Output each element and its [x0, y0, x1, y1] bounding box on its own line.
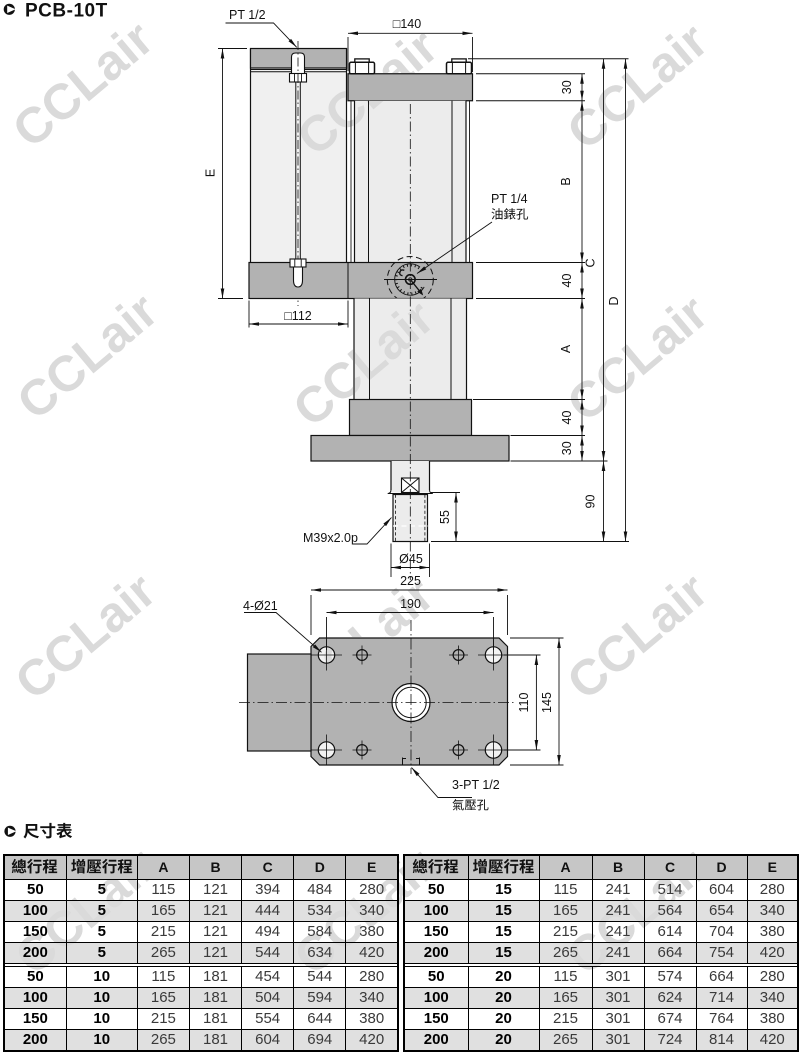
- svg-text:D: D: [607, 296, 621, 305]
- svg-text:M39x2.0p: M39x2.0p: [303, 531, 358, 545]
- svg-text:□112: □112: [284, 309, 312, 323]
- svg-text:90: 90: [584, 495, 598, 509]
- svg-text:3-PT 1/2: 3-PT 1/2: [452, 778, 500, 792]
- svg-text:225: 225: [400, 574, 421, 588]
- svg-text:Ø45: Ø45: [399, 552, 423, 566]
- svg-text:145: 145: [540, 692, 554, 713]
- svg-text:C: C: [584, 258, 598, 267]
- svg-text:4-Ø21: 4-Ø21: [243, 599, 278, 613]
- svg-text:40: 40: [560, 274, 574, 288]
- svg-text:PCB-10T: PCB-10T: [25, 1, 108, 22]
- svg-text:E: E: [204, 169, 218, 177]
- svg-text:PT 1/2: PT 1/2: [229, 8, 266, 22]
- svg-text:A: A: [559, 344, 573, 353]
- svg-text:PT 1/4: PT 1/4: [491, 192, 528, 206]
- svg-text:55: 55: [438, 510, 452, 524]
- svg-text:B: B: [559, 177, 573, 185]
- svg-text:□140: □140: [393, 17, 421, 31]
- svg-text:40: 40: [560, 411, 574, 425]
- svg-text:110: 110: [517, 692, 531, 712]
- svg-text:190: 190: [400, 597, 421, 611]
- svg-text:30: 30: [560, 80, 574, 94]
- svg-text:30: 30: [560, 441, 574, 455]
